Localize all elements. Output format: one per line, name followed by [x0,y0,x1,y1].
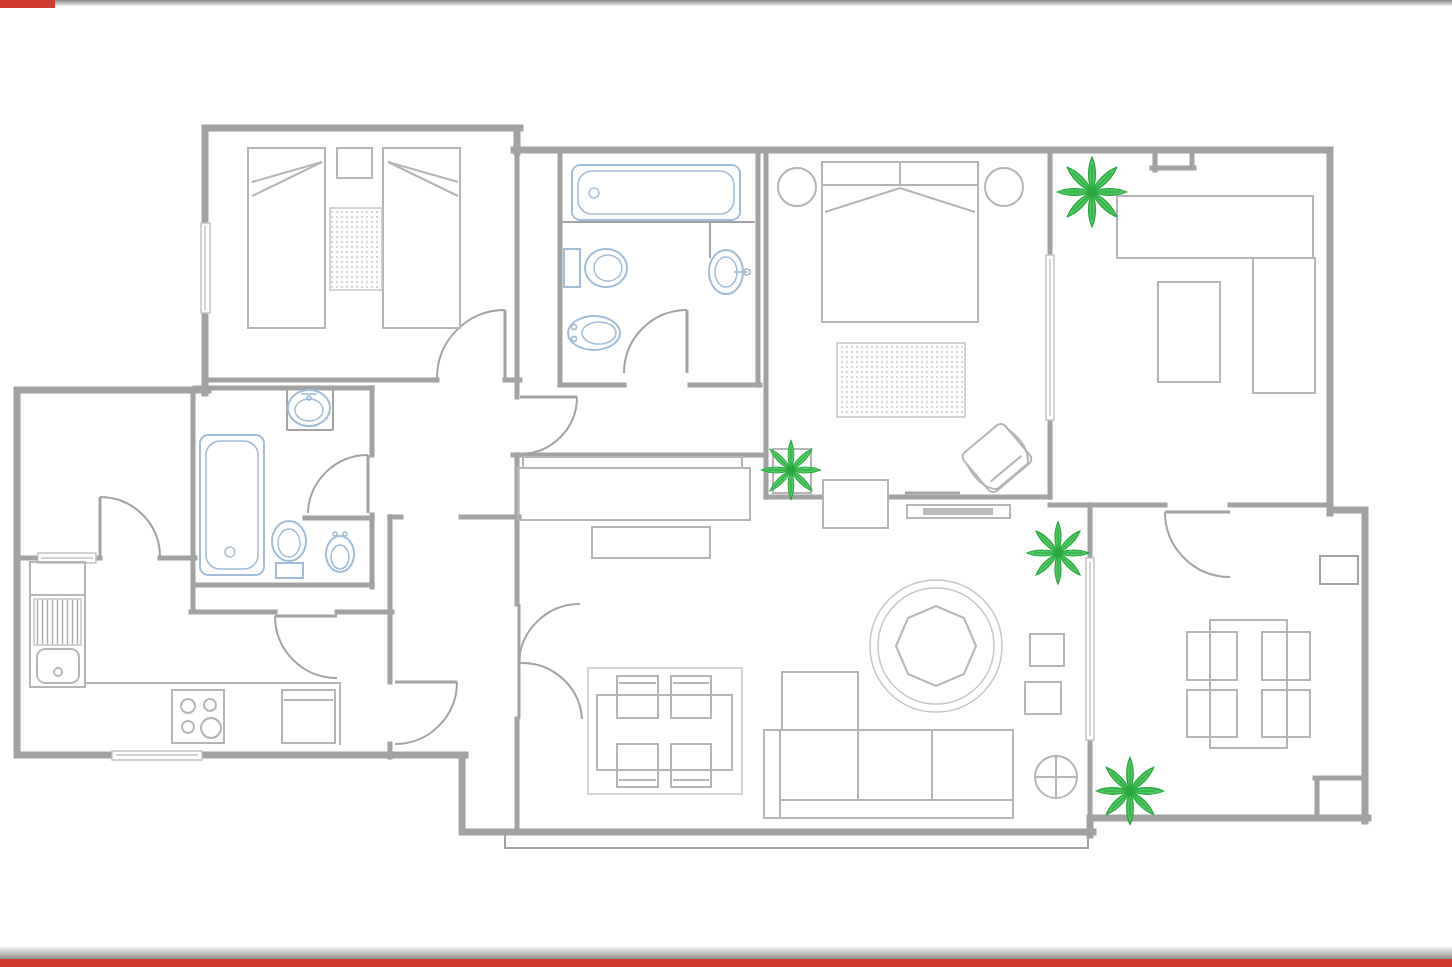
door-kitchen [275,616,337,678]
dining-area [588,668,742,794]
terrace-chair [1187,690,1237,737]
side-table [1025,682,1061,714]
door-second-bathroom [308,455,368,513]
door-twin-bedroom [437,310,505,378]
dining-chair [617,744,658,787]
desk-return [1253,258,1315,393]
octagon-table [896,606,976,686]
room-kitchen [30,562,340,745]
terrace-table [1210,620,1287,748]
window-kitchen [112,751,202,760]
terrace-room [1097,620,1310,824]
floor-plan-page [0,0,1452,967]
bedroom-rug [837,343,965,417]
tv-bench [907,505,1010,518]
chaise [782,672,858,730]
bathtub [572,165,740,220]
dining-chair [671,676,711,718]
room-study [1057,157,1315,393]
doorway-threshold-master [823,480,888,528]
terrace-chair [1187,632,1237,680]
floor-plan-image [0,0,1452,967]
bench [592,527,710,558]
window-master-study-wall [1046,255,1054,420]
room-twin-bedroom [248,148,460,328]
twin-bed-2 [383,148,460,328]
nightstand [337,148,372,178]
twin-bed-1 [248,148,325,328]
round-nightstand [985,168,1023,206]
room-main-bathroom [564,165,750,350]
appliance [282,690,335,743]
door-hall-top [520,397,577,454]
washbasin [709,250,750,294]
door-utility-room [100,497,160,557]
double-bed [822,162,978,322]
counter [85,683,340,745]
desk [1117,196,1313,258]
kitchen-sink [30,595,85,687]
window-living-terrace-wall [1086,558,1094,740]
bathtub [200,435,264,575]
washbasin [288,390,330,426]
toilet [272,521,306,578]
window-twin-bedroom [201,223,210,313]
bedroom-rug [330,208,382,290]
bottom-red-accent [0,959,1452,967]
bidet [326,532,354,572]
room-second-bathroom [200,390,354,578]
room-master-bedroom [778,162,1035,518]
dining-chair [617,676,658,718]
side-table [1030,634,1064,666]
bottom-edge-bar [0,946,1452,959]
sideboard [518,457,750,520]
door-study-terrace [1165,512,1230,577]
living-room [764,522,1089,818]
toilet [564,249,627,287]
door-main-bathroom [624,310,687,373]
sofa [764,672,1013,818]
round-rug [870,580,1002,712]
round-nightstand [778,168,816,206]
plant [1027,522,1089,584]
upper-cabinet [30,562,85,595]
plant [1097,758,1164,825]
door-hall-living-pair [519,604,582,719]
armchair [959,420,1035,495]
plant [762,441,821,500]
hob [172,690,224,743]
dining-chair [671,744,711,787]
plant [1057,157,1126,226]
bidet [568,316,620,350]
chair-rect [1158,282,1220,382]
door-corridor [395,682,457,744]
dining-rug [588,668,742,794]
floor-lamp [1035,756,1077,798]
